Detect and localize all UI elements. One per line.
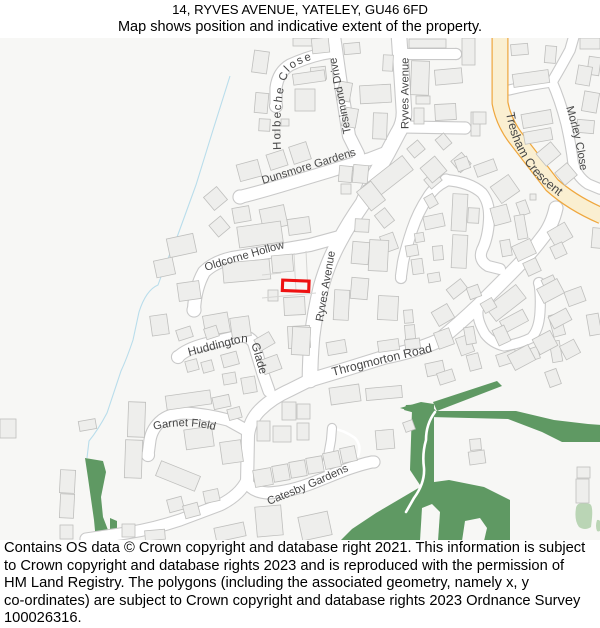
svg-text:Ryves Avenue: Ryves Avenue bbox=[400, 58, 412, 129]
